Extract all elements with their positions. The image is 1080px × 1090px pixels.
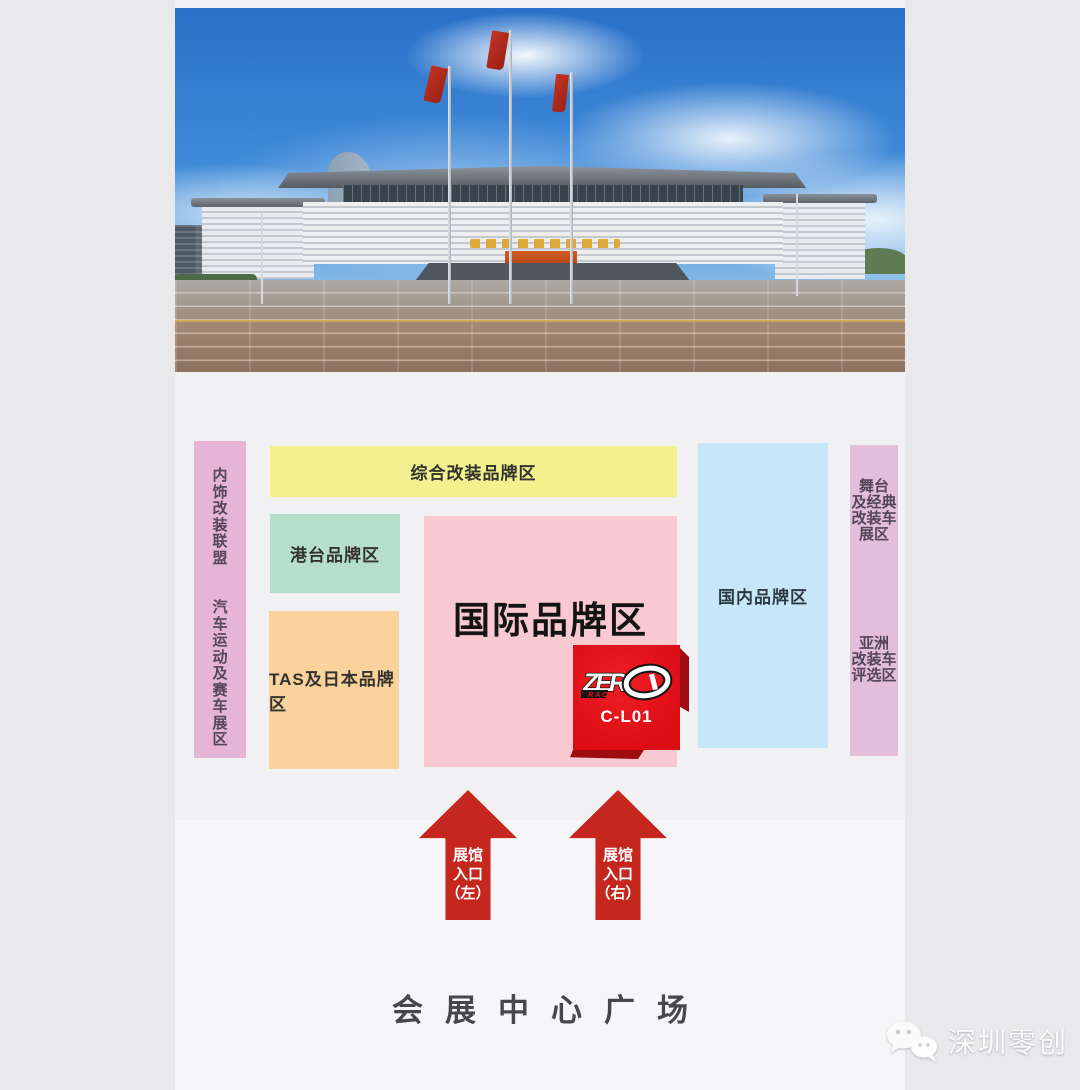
international-brands-label: 国际品牌区	[453, 590, 648, 644]
zone-comprehensive-tuning: 综合改装品牌区	[270, 446, 677, 497]
comprehensive-tuning-label: 综合改装品牌区	[411, 459, 537, 484]
right-wing	[775, 203, 865, 279]
content-column: 内 饰 改 装 联 盟 汽 车 运 动 及 赛 车 展 区 综合改装品牌区 港台…	[175, 0, 905, 1090]
left-wing	[202, 207, 314, 279]
asia-tuning-award-label: 亚洲 改装车 评选区	[851, 636, 896, 684]
booth-3d-side	[680, 648, 689, 712]
tas-japan-label: TAS及日本品牌区	[269, 665, 399, 715]
light-pole-left	[261, 212, 263, 304]
zero-racing-booth-marker: ZER RACING C-L01	[573, 645, 680, 750]
logo-one-slash	[649, 674, 658, 691]
watermark: 深圳零创	[883, 1018, 1068, 1064]
domestic-brands-label: 国内品牌区	[718, 583, 808, 608]
page: 内 饰 改 装 联 盟 汽 车 运 动 及 赛 车 展 区 综合改装品牌区 港台…	[0, 0, 1080, 1090]
booth-code: C-L01	[600, 707, 652, 727]
wechat-icon	[883, 1018, 943, 1064]
flagpole-2	[509, 30, 512, 304]
zero-racing-logo-icon: ZER RACING	[581, 663, 673, 705]
zone-domestic-brands: 国内品牌区	[698, 443, 828, 748]
watermark-text: 深圳零创	[948, 1021, 1068, 1061]
flagpole-3	[570, 72, 573, 304]
zone-hk-taiwan-brands: 港台品牌区	[270, 514, 400, 593]
zone-interior-alliance-strip: 内 饰 改 装 联 盟 汽 车 运 动 及 赛 车 展 区	[194, 441, 246, 758]
flagpole-1	[448, 66, 451, 304]
light-pole-right	[796, 194, 798, 296]
interior-alliance-label: 内 饰 改 装 联 盟	[212, 468, 227, 567]
hk-taiwan-label: 港台品牌区	[290, 541, 380, 566]
plaza-caption: 会展中心广场	[175, 985, 905, 1030]
plaza-marking-line	[175, 320, 905, 322]
zone-tas-japan-brands: TAS及日本品牌区	[269, 611, 399, 769]
logo-racing-text: RACING	[588, 690, 627, 699]
venue-photo	[175, 8, 905, 372]
motorsport-zone-label: 汽 车 运 动 及 赛 车 展 区	[212, 600, 227, 749]
entrance-canopy	[415, 263, 690, 281]
stage-classic-label: 舞台 及经典 改装车 展区	[851, 479, 896, 543]
building-sign	[470, 239, 620, 248]
zone-stage-classic-strip: 舞台 及经典 改装车 展区 亚洲 改装车 评选区	[850, 445, 898, 756]
lower-background	[175, 820, 905, 1090]
